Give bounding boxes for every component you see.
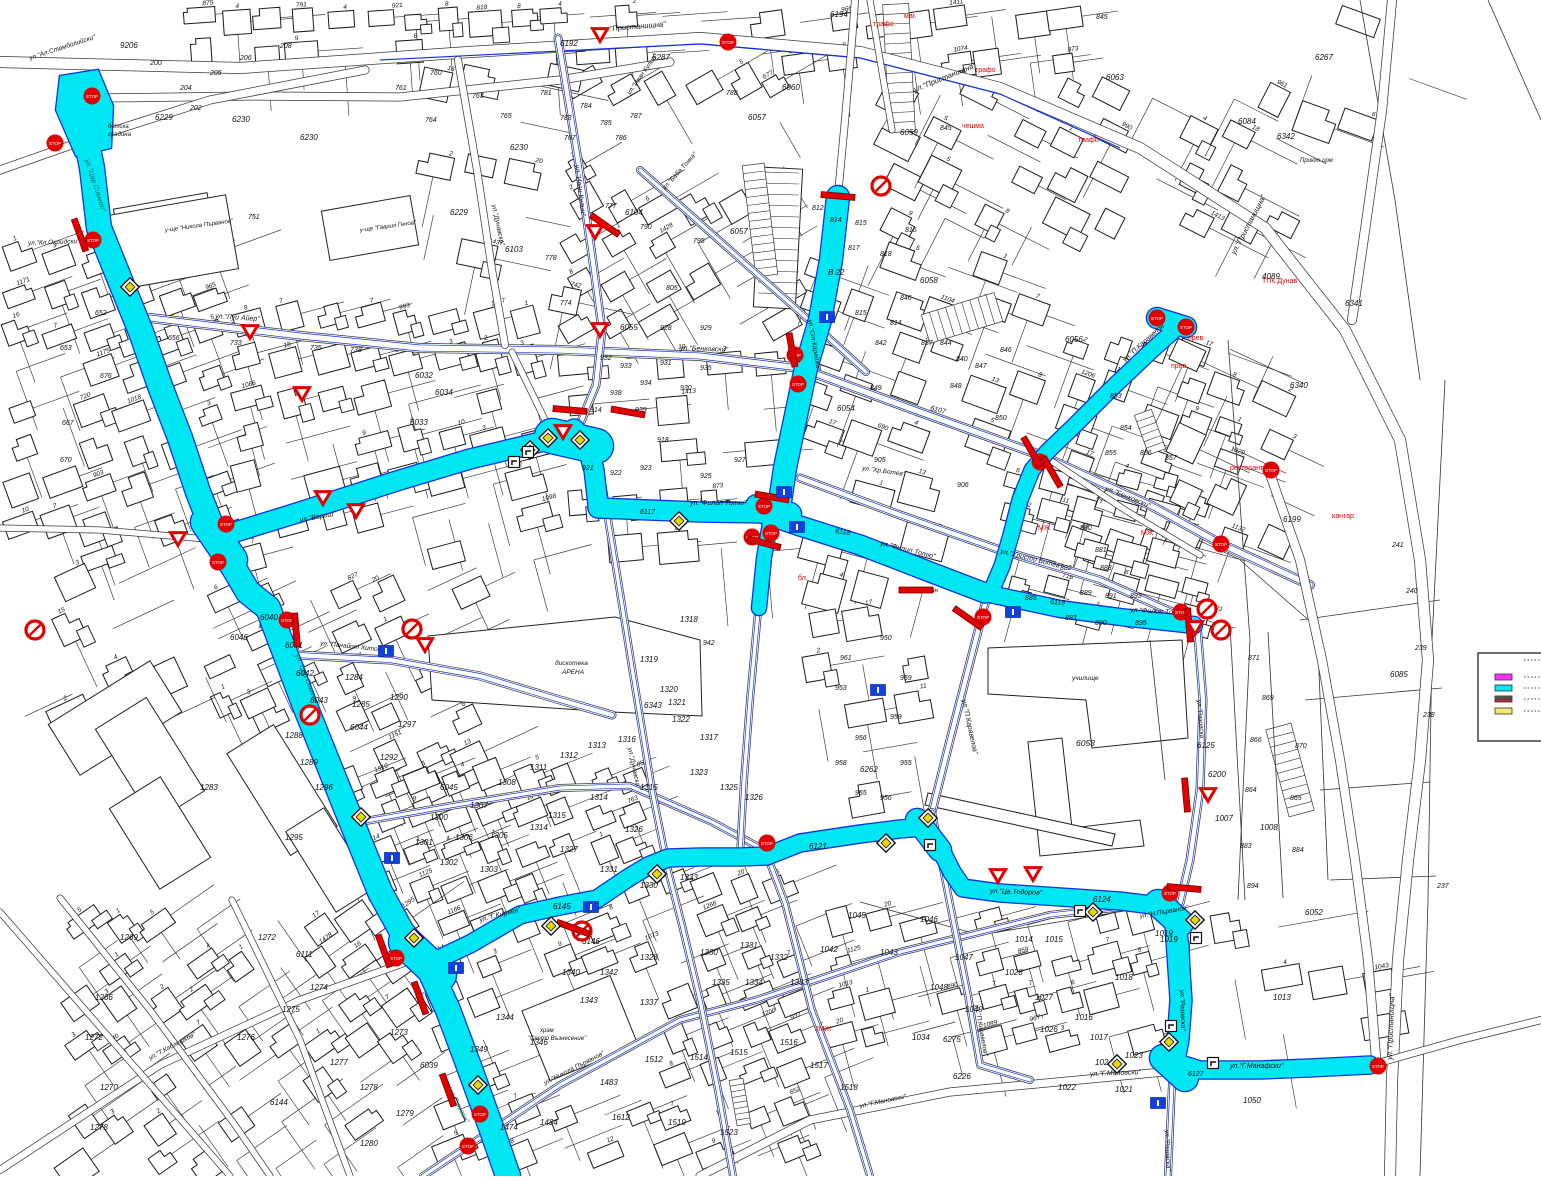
svg-text:875: 875 <box>202 0 214 7</box>
svg-text:1275: 1275 <box>282 1005 300 1014</box>
svg-text:870: 870 <box>1295 743 1307 750</box>
svg-text:1278: 1278 <box>360 1083 378 1092</box>
svg-text:1330: 1330 <box>700 948 718 957</box>
svg-text:6056: 6056 <box>1065 335 1083 344</box>
svg-text:865: 865 <box>1290 795 1302 802</box>
svg-text:1266: 1266 <box>95 993 113 1002</box>
svg-text:894: 894 <box>1247 883 1259 890</box>
svg-text:205: 205 <box>209 70 222 77</box>
svg-text:STOP: STOP <box>1151 316 1163 321</box>
svg-text:6044: 6044 <box>350 723 368 732</box>
svg-text:814: 814 <box>830 217 842 224</box>
svg-text:837: 837 <box>921 340 934 347</box>
svg-text:6032: 6032 <box>415 371 433 380</box>
svg-text:885: 885 <box>1025 595 1037 602</box>
svg-text:B 22: B 22 <box>828 268 845 277</box>
svg-text:790: 790 <box>640 224 652 231</box>
svg-text:STOP: STOP <box>462 1144 474 1149</box>
svg-text:1022: 1022 <box>1058 1083 1076 1092</box>
svg-text:930: 930 <box>680 385 692 392</box>
svg-text:938: 938 <box>610 390 622 397</box>
svg-text:950: 950 <box>880 635 892 642</box>
svg-text:883: 883 <box>1065 615 1077 622</box>
svg-text:1517: 1517 <box>810 1061 828 1070</box>
svg-text:815: 815 <box>855 220 867 227</box>
svg-text:6127: 6127 <box>1188 1071 1205 1078</box>
svg-text:6230: 6230 <box>232 115 250 124</box>
svg-text:953: 953 <box>835 685 847 692</box>
svg-text:1302: 1302 <box>440 858 458 867</box>
svg-text:6054: 6054 <box>837 404 855 413</box>
svg-text:1027: 1027 <box>1035 993 1053 1002</box>
svg-text:891: 891 <box>1105 593 1117 600</box>
svg-text:6059: 6059 <box>900 128 918 137</box>
svg-text:1612: 1612 <box>612 1113 630 1122</box>
svg-text:1285: 1285 <box>352 700 370 709</box>
svg-text:922: 922 <box>610 470 622 477</box>
svg-text:чешма: чешма <box>962 123 984 130</box>
svg-text:STOP: STOP <box>1265 468 1277 473</box>
svg-text:6230: 6230 <box>300 133 318 142</box>
svg-text:814: 814 <box>890 320 902 327</box>
svg-text:STOP: STOP <box>1215 542 1227 547</box>
svg-text:1474: 1474 <box>500 1123 518 1132</box>
svg-text:прев.: прев. <box>1171 363 1188 370</box>
svg-text:6033: 6033 <box>410 418 428 427</box>
svg-text:1276: 1276 <box>237 1033 255 1042</box>
svg-text:1331: 1331 <box>740 941 758 950</box>
svg-text:208: 208 <box>279 43 292 50</box>
svg-text:1296: 1296 <box>315 783 333 792</box>
svg-text:6229: 6229 <box>155 113 173 122</box>
svg-text:STOP: STOP <box>761 841 773 846</box>
svg-text:921: 921 <box>582 465 594 472</box>
svg-text:791: 791 <box>296 1 308 9</box>
svg-text:1344: 1344 <box>496 1013 514 1022</box>
svg-text:817: 817 <box>848 245 861 252</box>
svg-text:6058: 6058 <box>920 276 938 285</box>
svg-text:6085: 6085 <box>1390 670 1408 679</box>
svg-text:2МЖ: 2МЖ <box>815 1026 832 1033</box>
svg-text:1019: 1019 <box>1160 935 1178 944</box>
svg-text:1017: 1017 <box>1090 1033 1108 1042</box>
svg-text:1320: 1320 <box>660 685 678 694</box>
svg-text:STOP: STOP <box>87 238 99 243</box>
svg-text:956: 956 <box>855 735 867 742</box>
svg-text:6053: 6053 <box>1076 738 1095 748</box>
svg-text:1334: 1334 <box>745 978 763 987</box>
svg-text:933: 933 <box>620 363 632 370</box>
svg-text:1318: 1318 <box>680 615 698 624</box>
svg-text:градина: градина <box>108 132 132 138</box>
svg-text:845: 845 <box>940 125 952 132</box>
svg-text:1043: 1043 <box>880 948 898 957</box>
svg-text:6267: 6267 <box>1315 53 1333 62</box>
svg-text:МЖ: МЖ <box>1038 525 1051 532</box>
svg-text:805: 805 <box>666 285 678 292</box>
svg-text:778: 778 <box>545 255 557 262</box>
svg-text:дискотека: дискотека <box>555 659 588 667</box>
svg-text:6040: 6040 <box>260 613 278 622</box>
svg-text:9206: 9206 <box>120 41 138 50</box>
svg-text:961: 961 <box>840 655 852 662</box>
svg-text:6287: 6287 <box>652 53 670 62</box>
svg-text:6045: 6045 <box>440 783 458 792</box>
svg-text:1018: 1018 <box>1115 973 1133 982</box>
svg-text:6226: 6226 <box>953 1072 971 1081</box>
svg-text:1274: 1274 <box>310 983 328 992</box>
svg-text:6039: 6039 <box>420 1061 438 1070</box>
svg-text:818: 818 <box>880 251 892 258</box>
svg-text:866: 866 <box>1250 737 1262 744</box>
svg-text:237: 237 <box>1436 883 1450 890</box>
svg-text:STOP: STOP <box>281 618 293 623</box>
svg-text:889: 889 <box>1080 590 1092 597</box>
svg-text:1343: 1343 <box>580 996 598 1005</box>
svg-text:1311: 1311 <box>530 763 547 772</box>
svg-text:761: 761 <box>395 85 407 92</box>
svg-text:STOP: STOP <box>765 531 777 536</box>
svg-text:931: 931 <box>660 360 672 367</box>
svg-text:6046: 6046 <box>230 633 248 642</box>
svg-text:200: 200 <box>149 60 162 67</box>
svg-text:1008: 1008 <box>1260 823 1278 832</box>
svg-text:6043: 6043 <box>310 696 328 705</box>
svg-text:1014: 1014 <box>1015 935 1033 944</box>
svg-text:1337: 1337 <box>640 998 658 1007</box>
svg-text:238: 238 <box>1422 712 1435 719</box>
svg-text:6084: 6084 <box>1238 117 1256 126</box>
svg-text:1321: 1321 <box>668 698 686 707</box>
svg-text:ул."Г.Манафски": ул."Г.Манафски" <box>1229 1063 1284 1070</box>
svg-text:652: 652 <box>95 310 107 317</box>
svg-text:1516: 1516 <box>780 1038 798 1047</box>
svg-text:1514: 1514 <box>690 1053 708 1062</box>
svg-text:1333: 1333 <box>680 873 698 882</box>
svg-text:842: 842 <box>875 340 887 347</box>
svg-text:240: 240 <box>1405 588 1418 595</box>
svg-text:1050: 1050 <box>1243 1096 1261 1105</box>
svg-text:STOP: STOP <box>977 615 989 620</box>
svg-text:1283: 1283 <box>200 783 218 792</box>
svg-text:959: 959 <box>900 675 912 682</box>
svg-text:239: 239 <box>1414 645 1427 652</box>
svg-text:1483: 1483 <box>600 1078 618 1087</box>
svg-text:1279: 1279 <box>396 1109 414 1118</box>
svg-text:788: 788 <box>726 90 738 97</box>
svg-text:905: 905 <box>874 457 886 464</box>
svg-text:1333: 1333 <box>790 978 808 987</box>
svg-text:1297: 1297 <box>398 720 416 729</box>
svg-text:1046: 1046 <box>920 915 938 924</box>
svg-text:1308: 1308 <box>498 778 516 787</box>
svg-text:6119: 6119 <box>1050 599 1066 607</box>
svg-text:трафо: трафо <box>1078 137 1099 144</box>
svg-text:927: 927 <box>734 457 747 464</box>
svg-text:6063: 6063 <box>1106 73 1124 82</box>
svg-text:848: 848 <box>950 383 962 390</box>
svg-text:6104: 6104 <box>625 208 643 217</box>
svg-text:STOP: STOP <box>220 522 232 527</box>
svg-text:Приют орм: Приют орм <box>1300 158 1333 164</box>
svg-text:751: 751 <box>248 214 260 221</box>
svg-text:204: 204 <box>179 85 192 92</box>
svg-text:6340: 6340 <box>1290 381 1308 390</box>
svg-text:880: 880 <box>1080 525 1092 532</box>
svg-text:1049: 1049 <box>965 1005 983 1014</box>
svg-text:2: 2 <box>632 0 637 5</box>
svg-text:760: 760 <box>430 70 442 77</box>
svg-text:667: 667 <box>62 420 75 427</box>
svg-text:1342: 1342 <box>600 968 618 977</box>
svg-text:846: 846 <box>900 295 912 302</box>
svg-text:864: 864 <box>1245 787 1257 794</box>
svg-text:1290: 1290 <box>390 693 408 702</box>
svg-text:856: 856 <box>1140 450 1152 457</box>
svg-text:6124: 6124 <box>1093 895 1111 904</box>
svg-text:1328: 1328 <box>640 953 658 962</box>
svg-text:МЖ: МЖ <box>1141 530 1154 537</box>
svg-text:училище: училище <box>1071 675 1099 682</box>
svg-text:прев.: прев. <box>1188 335 1205 342</box>
svg-text:STOP: STOP <box>1164 891 1176 896</box>
svg-text:1314: 1314 <box>530 823 548 832</box>
svg-text:1340: 1340 <box>562 968 580 977</box>
svg-text:956: 956 <box>880 795 892 802</box>
svg-text:1023: 1023 <box>1125 1051 1143 1060</box>
svg-text:1303: 1303 <box>480 865 498 874</box>
svg-text:784: 784 <box>580 103 592 110</box>
svg-text:873: 873 <box>712 482 724 490</box>
svg-text:934: 934 <box>640 380 652 387</box>
svg-text:маг.: маг. <box>904 13 916 20</box>
svg-text:1272: 1272 <box>85 1033 103 1042</box>
svg-text:959: 959 <box>890 714 902 721</box>
svg-text:1007: 1007 <box>1215 814 1233 823</box>
svg-text:921: 921 <box>392 2 404 10</box>
svg-text:928: 928 <box>660 325 672 332</box>
svg-text:6060: 6060 <box>782 83 800 92</box>
svg-text:774: 774 <box>560 300 572 307</box>
svg-text:849: 849 <box>870 385 882 392</box>
svg-text:1277: 1277 <box>330 1058 348 1067</box>
svg-text:733: 733 <box>230 340 242 347</box>
svg-text:6230: 6230 <box>510 143 528 152</box>
svg-text:ул."Филип Тотю": ул."Филип Тотю" <box>689 500 747 507</box>
svg-text:1306: 1306 <box>455 833 473 842</box>
svg-text:1323: 1323 <box>690 768 708 777</box>
svg-text:888: 888 <box>1100 565 1112 572</box>
svg-text:1349: 1349 <box>470 1045 488 1054</box>
svg-text:1315: 1315 <box>640 783 658 792</box>
svg-text:1518: 1518 <box>840 1083 858 1092</box>
svg-text:STOP: STOP <box>1372 1064 1384 1069</box>
svg-text:785: 785 <box>600 120 612 127</box>
svg-text:853: 853 <box>1110 393 1122 400</box>
svg-text:883: 883 <box>1240 843 1252 850</box>
svg-text:656: 656 <box>168 335 180 342</box>
svg-text:1305: 1305 <box>490 831 508 840</box>
svg-text:206: 206 <box>239 55 252 62</box>
svg-text:763: 763 <box>472 93 484 100</box>
svg-text:1315: 1315 <box>548 811 566 820</box>
svg-text:845: 845 <box>1096 14 1108 21</box>
svg-text:6194: 6194 <box>830 10 848 19</box>
svg-text:1021: 1021 <box>1115 1085 1133 1094</box>
svg-text:653: 653 <box>60 345 72 352</box>
svg-text:923: 923 <box>640 465 652 472</box>
svg-text:738: 738 <box>350 347 362 354</box>
svg-text:1519: 1519 <box>668 1118 686 1127</box>
svg-text:884: 884 <box>1292 847 1304 854</box>
svg-text:6262: 6262 <box>860 765 878 774</box>
svg-text:1331: 1331 <box>600 865 618 874</box>
svg-text:6144: 6144 <box>270 1098 288 1107</box>
svg-text:1028: 1028 <box>1005 968 1023 977</box>
svg-text:1273: 1273 <box>390 1028 408 1037</box>
svg-text:6192: 6192 <box>560 39 578 48</box>
svg-text:STOP: STOP <box>758 504 770 509</box>
svg-text:241: 241 <box>1391 542 1404 549</box>
svg-text:812: 812 <box>812 205 824 212</box>
svg-text:STOP: STOP <box>390 956 402 961</box>
svg-text:6200: 6200 <box>1208 770 1226 779</box>
svg-text:храм: храм <box>539 1028 554 1034</box>
svg-text:1289: 1289 <box>300 758 318 767</box>
svg-text:929: 929 <box>700 325 712 332</box>
svg-text:6275: 6275 <box>943 1035 961 1044</box>
svg-text:1512: 1512 <box>645 1055 663 1064</box>
svg-text:1026: 1026 <box>1040 1025 1058 1034</box>
svg-text:893: 893 <box>1130 593 1142 600</box>
svg-text:STOP: STOP <box>792 382 804 387</box>
svg-text:1045: 1045 <box>848 911 866 920</box>
svg-text:1484: 1484 <box>540 1118 558 1127</box>
svg-text:787: 787 <box>630 113 643 120</box>
svg-text:1307: 1307 <box>470 801 488 810</box>
svg-text:6111: 6111 <box>296 950 313 959</box>
svg-text:855: 855 <box>1105 450 1117 457</box>
svg-text:1327: 1327 <box>560 845 578 854</box>
svg-text:764: 764 <box>425 117 437 124</box>
svg-text:STOP: STOP <box>212 560 224 565</box>
svg-text:6343: 6343 <box>644 701 662 710</box>
svg-text:795: 795 <box>693 238 705 245</box>
svg-text:816: 816 <box>905 227 917 234</box>
svg-text:1314: 1314 <box>590 793 608 802</box>
svg-text:6342: 6342 <box>1277 132 1295 141</box>
svg-text:955: 955 <box>900 760 912 767</box>
svg-text:STOP: STOP <box>474 1112 486 1117</box>
svg-text:6057: 6057 <box>748 113 766 122</box>
svg-text:STOP: STOP <box>49 141 61 146</box>
svg-text:1284: 1284 <box>345 673 363 682</box>
svg-text:1016: 1016 <box>1075 1013 1093 1022</box>
svg-text:783: 783 <box>560 115 572 122</box>
svg-text:бл.: бл. <box>798 574 808 582</box>
svg-text:1335: 1335 <box>712 978 730 987</box>
svg-text:1300: 1300 <box>430 813 448 822</box>
svg-text:818: 818 <box>476 4 488 12</box>
svg-text:890: 890 <box>1095 620 1107 627</box>
svg-text:трафо: трафо <box>873 21 894 28</box>
svg-text:6125: 6125 <box>1197 741 1215 750</box>
svg-text:STOP: STOP <box>86 94 98 99</box>
svg-text:STOP: STOP <box>1180 325 1192 330</box>
svg-text:АРЕНА: АРЕНА <box>561 669 584 676</box>
svg-text:1047: 1047 <box>955 953 973 962</box>
svg-text:1288: 1288 <box>285 731 303 740</box>
svg-text:955: 955 <box>855 790 867 797</box>
svg-text:6199: 6199 <box>1283 515 1301 524</box>
svg-text:906: 906 <box>957 482 969 489</box>
svg-text:6341: 6341 <box>1345 299 1363 308</box>
svg-text:882: 882 <box>1060 565 1072 572</box>
svg-text:854: 854 <box>1120 425 1132 432</box>
svg-text:1325: 1325 <box>720 783 738 792</box>
svg-text:детска: детска <box>108 124 129 130</box>
svg-text:1313: 1313 <box>588 741 606 750</box>
svg-text:676: 676 <box>100 373 112 380</box>
svg-text:935: 935 <box>700 365 712 372</box>
svg-text:869: 869 <box>1262 695 1274 702</box>
svg-text:918: 918 <box>657 437 669 444</box>
svg-text:1301: 1301 <box>415 838 433 847</box>
svg-text:815: 815 <box>855 310 867 317</box>
svg-text:1269: 1269 <box>120 933 138 942</box>
svg-text:6052: 6052 <box>1305 908 1323 917</box>
svg-text:840: 840 <box>956 356 968 363</box>
svg-text:786: 786 <box>615 135 627 142</box>
svg-text:767: 767 <box>564 135 577 142</box>
svg-text:1013: 1013 <box>1273 993 1291 1002</box>
svg-text:6042: 6042 <box>296 669 314 678</box>
svg-text:1317: 1317 <box>700 733 718 742</box>
svg-text:1272: 1272 <box>258 933 276 942</box>
svg-text:881: 881 <box>1095 547 1107 554</box>
svg-text:942: 942 <box>703 640 715 647</box>
svg-text:735: 735 <box>310 345 322 352</box>
svg-text:202: 202 <box>189 105 202 112</box>
svg-text:1048: 1048 <box>930 983 948 992</box>
svg-text:847: 847 <box>975 363 988 370</box>
svg-text:1326: 1326 <box>745 793 763 802</box>
svg-text:1319: 1319 <box>640 655 658 664</box>
svg-text:857: 857 <box>1165 455 1178 462</box>
svg-text:1316: 1316 <box>618 735 636 744</box>
svg-text:925: 925 <box>700 473 712 480</box>
svg-text:трафо: трафо <box>975 67 996 74</box>
svg-text:6034: 6034 <box>435 388 453 397</box>
svg-text:6103: 6103 <box>505 245 523 254</box>
svg-text:1295: 1295 <box>285 833 303 842</box>
svg-text:STOP: STOP <box>722 40 734 45</box>
svg-text:6121: 6121 <box>809 842 827 851</box>
svg-text:1292: 1292 <box>380 753 398 762</box>
svg-text:1270: 1270 <box>100 1083 118 1092</box>
svg-text:6057: 6057 <box>730 227 748 236</box>
svg-text:1322: 1322 <box>672 715 690 724</box>
svg-text:958: 958 <box>835 760 847 767</box>
svg-text:6229: 6229 <box>450 208 468 217</box>
svg-text:781: 781 <box>540 90 552 97</box>
svg-text:6145: 6145 <box>553 902 571 911</box>
svg-text:1278: 1278 <box>90 1123 108 1132</box>
svg-text:670: 670 <box>60 457 72 464</box>
svg-text:932: 932 <box>600 355 612 362</box>
svg-text:777: 777 <box>605 203 618 210</box>
svg-text:1515: 1515 <box>730 1048 748 1057</box>
